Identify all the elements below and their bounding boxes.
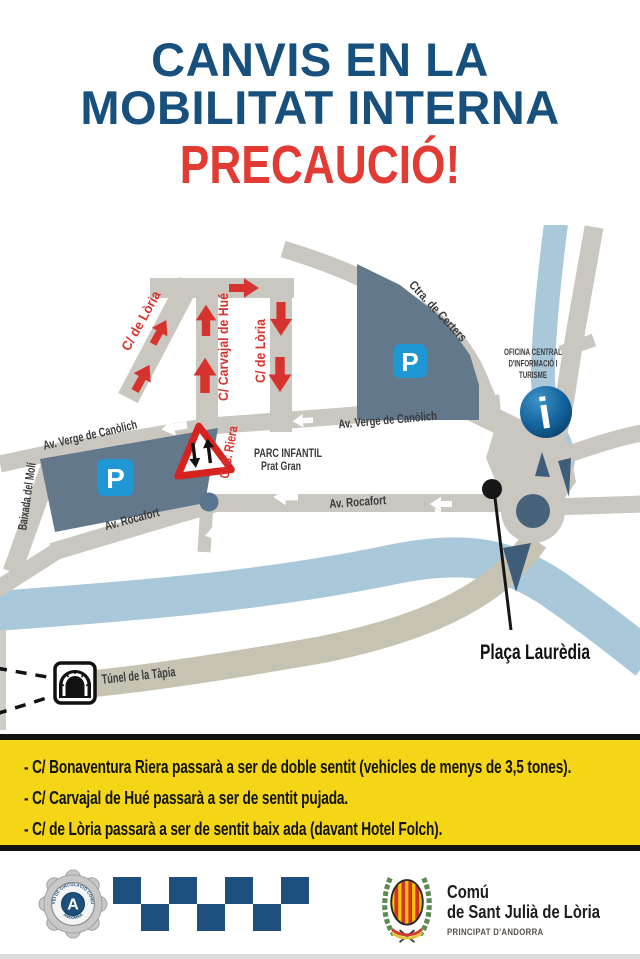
title-block: CANVIS EN LA MOBILITAT INTERNA PRECAUCIÓ… [0, 36, 640, 194]
tunnel-route-dashes [0, 668, 53, 714]
label-oficina-3: TURISME [519, 370, 547, 380]
circulation-badge-logo: SERVEI DE CIRCULACIÓ COMUNAL ANDORRA A [34, 864, 112, 944]
street-map: P P i [0, 225, 640, 737]
label-oficina-1: OFICINA CENTRAL [504, 347, 562, 357]
title-line-1: CANVIS EN LA [0, 36, 640, 84]
parking-icon-north: P [393, 344, 427, 378]
roundabout-center [516, 494, 550, 528]
org-name-line-1: Comú [447, 882, 600, 902]
tunnel-icon [55, 663, 95, 703]
title-line-2: MOBILITAT INTERNA [0, 84, 640, 132]
org-name-line-2: de Sant Julià de Lòria [447, 902, 600, 922]
street-spoke-right [552, 504, 640, 507]
label-carvajal: C/ Carvajal de Hué [216, 293, 231, 401]
label-oficina-2: D'INFORMACIÓ I [509, 358, 558, 369]
notice-item: - C/ Bonaventura Riera passarà a ser de … [24, 751, 480, 782]
badge-letter: A [67, 897, 79, 914]
bottom-edge [0, 954, 640, 959]
org-country: PRINCIPAT D'ANDORRA [447, 927, 604, 938]
parking-letter: P [106, 463, 125, 494]
notice-item: - C/ de Lòria passarà a ser de sentit ba… [24, 813, 480, 844]
label-loria-vertical: C/ de Lòria [253, 319, 268, 383]
junction-dot [200, 493, 219, 512]
notice-item: - C/ Carvajal de Hué passarà a ser de se… [24, 782, 480, 813]
warning-text: PRECAUCIÓ! [180, 136, 460, 194]
label-parc-2: Prat Gran [261, 461, 301, 473]
org-text: Comú de Sant Julià de Lòria PRINCIPAT D'… [447, 882, 638, 938]
parking-letter: P [401, 347, 418, 377]
poster: CANVIS EN LA MOBILITAT INTERNA PRECAUCIÓ… [0, 0, 640, 959]
parking-icon-west: P [97, 459, 134, 496]
label-parc-1: PARC INFANTIL [254, 448, 322, 460]
coat-of-arms [381, 865, 433, 947]
footer: SERVEI DE CIRCULACIÓ COMUNAL ANDORRA A [0, 851, 640, 954]
label-placa-lauredia: Plaça Laurèdia [480, 641, 590, 664]
checkered-flag [112, 877, 312, 931]
notice-banner: - C/ Bonaventura Riera passarà a ser de … [0, 734, 640, 851]
